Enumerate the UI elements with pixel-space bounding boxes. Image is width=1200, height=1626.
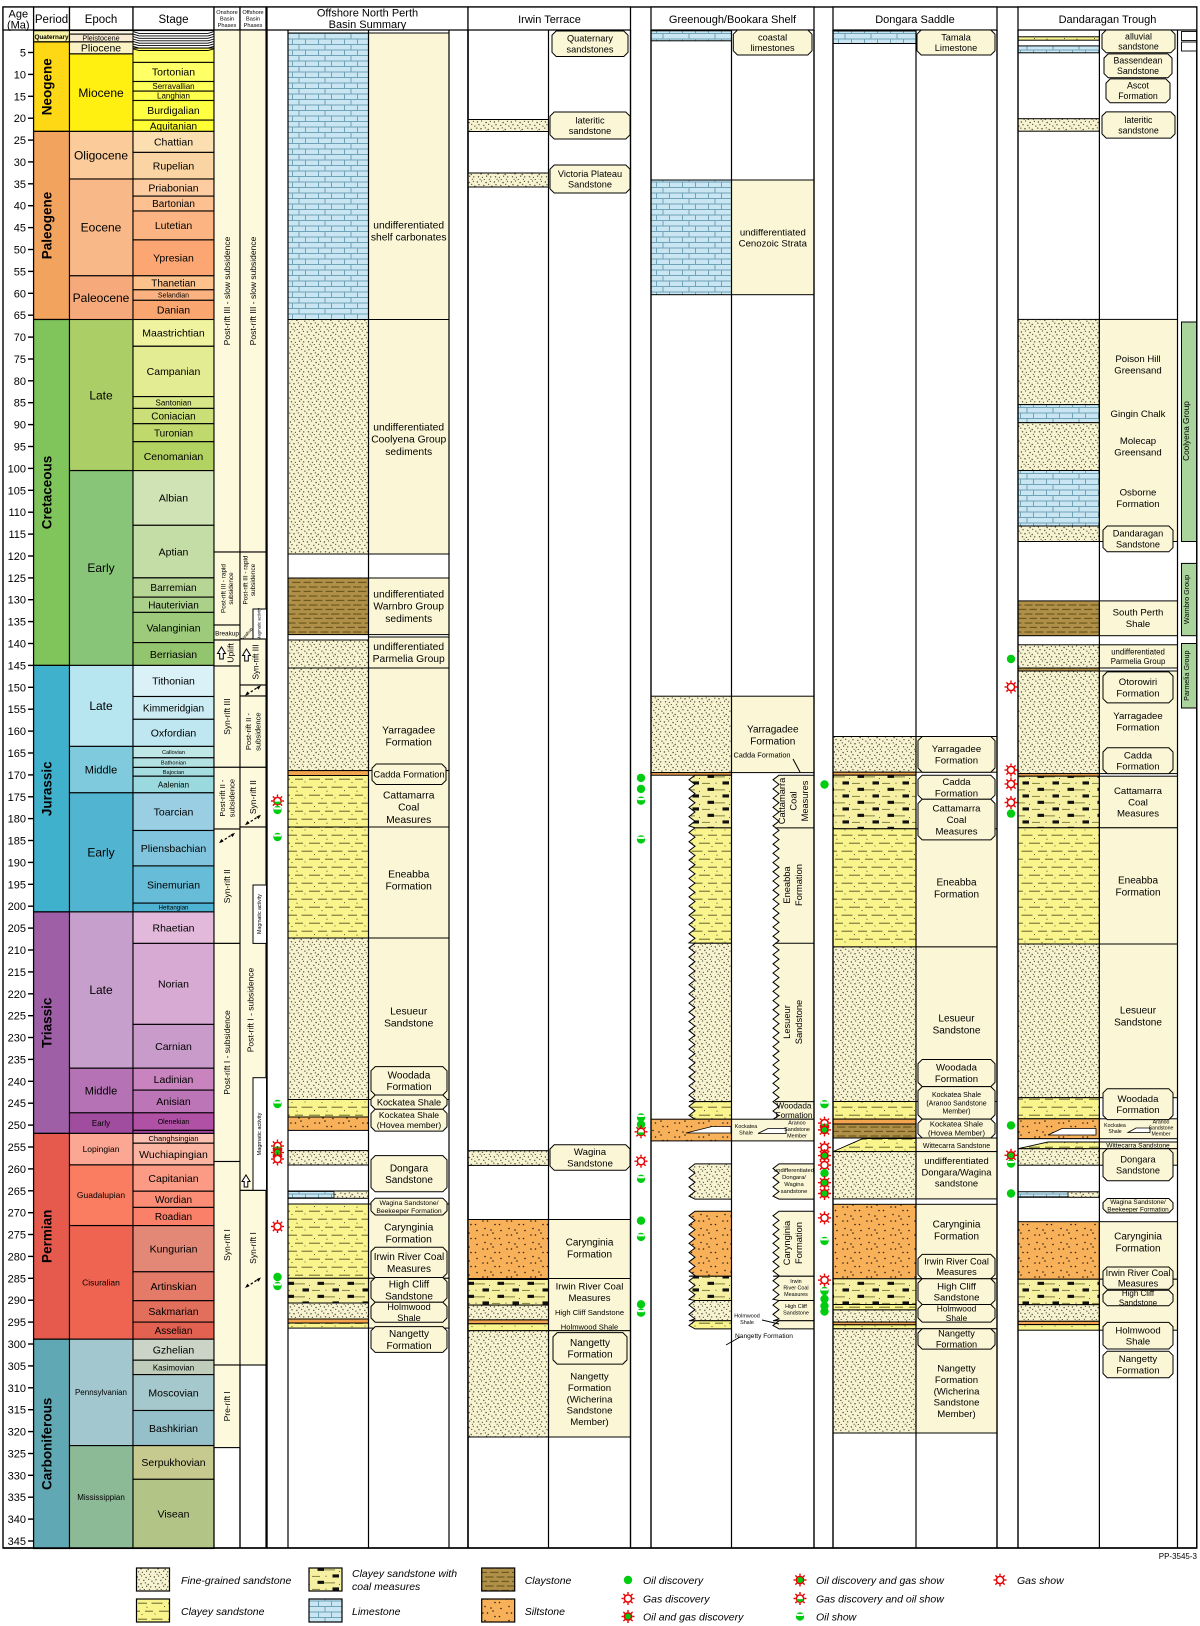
svg-text:Member): Member) xyxy=(942,1109,970,1116)
svg-text:Warnbro Group: Warnbro Group xyxy=(1182,575,1191,624)
svg-text:lateritic: lateritic xyxy=(575,115,605,125)
svg-text:Sandstone: Sandstone xyxy=(934,1293,980,1304)
svg-text:Gas discovery and oil show: Gas discovery and oil show xyxy=(816,1594,945,1606)
svg-text:205: 205 xyxy=(8,923,26,935)
svg-text:Gas show: Gas show xyxy=(1017,1575,1065,1587)
svg-text:alluvial: alluvial xyxy=(1125,31,1152,41)
svg-text:345: 345 xyxy=(8,1536,26,1548)
svg-text:Formation: Formation xyxy=(386,738,433,749)
svg-text:High Cliff: High Cliff xyxy=(785,1304,807,1310)
svg-text:Pliensbachian: Pliensbachian xyxy=(141,843,207,855)
svg-text:Sandstone: Sandstone xyxy=(933,1025,981,1036)
svg-text:Permian: Permian xyxy=(40,1210,55,1263)
svg-text:Aptian: Aptian xyxy=(159,546,189,558)
svg-text:Parmelia Group: Parmelia Group xyxy=(1111,657,1166,666)
svg-text:340: 340 xyxy=(8,1514,26,1526)
svg-text:Lutetian: Lutetian xyxy=(155,220,193,232)
svg-text:325: 325 xyxy=(8,1449,26,1461)
svg-text:Syn-rift II: Syn-rift II xyxy=(248,780,258,814)
svg-text:Norian: Norian xyxy=(158,979,189,991)
svg-text:Greenough/Bookara Shelf: Greenough/Bookara Shelf xyxy=(669,14,797,26)
svg-text:Early: Early xyxy=(87,846,114,860)
svg-text:Yarragadee: Yarragadee xyxy=(382,726,435,737)
svg-text:Limestone: Limestone xyxy=(935,43,977,53)
svg-text:Cattamarra: Cattamarra xyxy=(383,791,435,802)
svg-text:(Aranoo Sandstone: (Aranoo Sandstone xyxy=(926,1100,986,1107)
svg-text:undifferentiated: undifferentiated xyxy=(373,590,444,601)
svg-text:Syn-rift II: Syn-rift II xyxy=(222,869,232,903)
svg-text:South Perth: South Perth xyxy=(1113,608,1164,619)
svg-text:Lesueur: Lesueur xyxy=(1120,1006,1157,1017)
svg-text:Shale: Shale xyxy=(946,1313,968,1323)
svg-text:Uplift: Uplift xyxy=(226,643,236,663)
svg-text:Olenekian: Olenekian xyxy=(158,1119,190,1126)
svg-text:Langhian: Langhian xyxy=(157,92,190,101)
svg-text:Mississippian: Mississippian xyxy=(77,1493,125,1502)
svg-text:Formation: Formation xyxy=(935,755,978,766)
svg-text:330: 330 xyxy=(8,1470,26,1482)
svg-text:High Cliff Sandstone: High Cliff Sandstone xyxy=(555,1308,624,1317)
svg-text:Dongara: Dongara xyxy=(390,1163,429,1174)
svg-text:Formation: Formation xyxy=(1116,1105,1159,1116)
svg-text:Post-rift II -: Post-rift II - xyxy=(244,713,253,751)
svg-text:coastal: coastal xyxy=(758,32,787,42)
svg-text:Measures: Measures xyxy=(935,826,977,837)
svg-text:235: 235 xyxy=(8,1054,26,1066)
svg-text:Wittecarra Sandstone: Wittecarra Sandstone xyxy=(923,1143,990,1150)
svg-text:Nangetty: Nangetty xyxy=(570,1338,610,1349)
svg-text:Victoria Plateau: Victoria Plateau xyxy=(558,169,622,179)
svg-text:Nangetty: Nangetty xyxy=(1119,1354,1158,1365)
svg-text:Stage: Stage xyxy=(158,14,188,26)
svg-text:Sandstone: Sandstone xyxy=(568,180,612,190)
svg-text:Berriasian: Berriasian xyxy=(150,649,197,661)
svg-text:Paleocene: Paleocene xyxy=(73,291,130,305)
svg-text:160: 160 xyxy=(8,726,26,738)
svg-text:145: 145 xyxy=(8,660,26,672)
svg-text:Beekeeper Formation: Beekeeper Formation xyxy=(376,1208,442,1215)
svg-text:315: 315 xyxy=(8,1405,26,1417)
svg-text:Rhaetian: Rhaetian xyxy=(152,922,194,934)
svg-text:sandstone: sandstone xyxy=(1118,125,1159,135)
svg-text:Nangetty: Nangetty xyxy=(938,1329,975,1339)
svg-text:Serpukhovian: Serpukhovian xyxy=(141,1457,205,1469)
svg-text:Magmatic activity: Magmatic activity xyxy=(257,894,263,934)
svg-text:Early: Early xyxy=(92,1119,110,1128)
svg-text:Claystone: Claystone xyxy=(525,1575,572,1587)
svg-text:105: 105 xyxy=(8,485,26,497)
svg-text:Formation: Formation xyxy=(568,1383,611,1394)
svg-text:Woodada: Woodada xyxy=(388,1070,431,1081)
svg-text:Measures: Measures xyxy=(800,780,810,821)
svg-text:Formation: Formation xyxy=(1116,499,1159,510)
svg-text:Wordian: Wordian xyxy=(155,1195,192,1206)
svg-text:Triassic: Triassic xyxy=(40,997,55,1048)
svg-text:Basin: Basin xyxy=(220,17,234,23)
svg-text:Member: Member xyxy=(787,1134,807,1140)
svg-text:Eneabba: Eneabba xyxy=(936,878,976,889)
svg-text:165: 165 xyxy=(8,748,26,760)
svg-text:210: 210 xyxy=(8,945,26,957)
svg-text:Formation: Formation xyxy=(386,1341,431,1352)
svg-text:Gzhelian: Gzhelian xyxy=(153,1345,195,1357)
svg-text:Measures: Measures xyxy=(387,1264,431,1275)
svg-text:Tamala: Tamala xyxy=(941,32,972,42)
svg-text:Dandaragan: Dandaragan xyxy=(1113,529,1164,539)
svg-text:Early: Early xyxy=(87,561,114,575)
svg-text:Sandstone: Sandstone xyxy=(1116,540,1160,550)
svg-text:Post-rift III - slow subsidenc: Post-rift III - slow subsidence xyxy=(248,236,258,345)
svg-text:Roadian: Roadian xyxy=(155,1212,192,1223)
svg-text:Carnian: Carnian xyxy=(155,1041,192,1053)
svg-text:subsidence: subsidence xyxy=(228,572,235,605)
svg-text:Kockatea: Kockatea xyxy=(735,1124,757,1130)
svg-text:Coolyena Group: Coolyena Group xyxy=(371,435,446,446)
svg-text:45: 45 xyxy=(14,223,26,235)
svg-text:Osborne: Osborne xyxy=(1120,488,1157,499)
svg-text:Greensand: Greensand xyxy=(1114,366,1161,377)
svg-text:Formation: Formation xyxy=(1118,91,1158,101)
svg-text:Cadda: Cadda xyxy=(942,777,971,788)
svg-text:Sandstone: Sandstone xyxy=(567,1159,613,1170)
svg-text:Sinemurian: Sinemurian xyxy=(147,879,200,891)
svg-text:(Wicherina: (Wicherina xyxy=(567,1394,614,1405)
svg-text:Cadda Formation: Cadda Formation xyxy=(733,751,790,760)
svg-text:Carynginia: Carynginia xyxy=(384,1223,433,1234)
svg-text:Aalenian: Aalenian xyxy=(158,780,189,789)
svg-text:125: 125 xyxy=(8,573,26,585)
svg-text:Syn-rift I: Syn-rift I xyxy=(222,1229,232,1261)
svg-text:undifferentiated: undifferentiated xyxy=(373,642,444,653)
svg-text:60: 60 xyxy=(14,288,26,300)
svg-text:Cisuralian: Cisuralian xyxy=(82,1277,120,1287)
svg-text:Parmelia Group: Parmelia Group xyxy=(1182,651,1191,701)
svg-text:Lopingian: Lopingian xyxy=(83,1144,120,1154)
svg-text:Woodada: Woodada xyxy=(936,1063,978,1074)
svg-text:Gingin Chalk: Gingin Chalk xyxy=(1111,409,1166,420)
svg-text:Carynginia: Carynginia xyxy=(566,1238,614,1249)
svg-text:130: 130 xyxy=(8,595,26,607)
svg-text:High Cliff: High Cliff xyxy=(1122,1289,1155,1298)
svg-text:coal measures: coal measures xyxy=(352,1581,421,1593)
svg-text:170: 170 xyxy=(8,770,26,782)
svg-text:(Hovea member): (Hovea member) xyxy=(377,1120,442,1130)
svg-text:70: 70 xyxy=(14,332,26,344)
svg-text:Clayey sandstone with: Clayey sandstone with xyxy=(352,1568,457,1580)
svg-text:sandstone: sandstone xyxy=(781,1189,808,1195)
svg-text:(Hovea Member): (Hovea Member) xyxy=(928,1129,985,1138)
svg-text:Nangetty: Nangetty xyxy=(937,1364,976,1375)
svg-text:150: 150 xyxy=(8,682,26,694)
svg-text:Formation: Formation xyxy=(567,1350,612,1361)
svg-text:25: 25 xyxy=(14,135,26,147)
svg-text:Poison Hill: Poison Hill xyxy=(1115,354,1160,365)
svg-text:Artinskian: Artinskian xyxy=(150,1281,196,1293)
svg-text:High Cliff: High Cliff xyxy=(389,1280,430,1291)
svg-text:Formation: Formation xyxy=(935,1074,978,1085)
svg-text:Dandaragan Trough: Dandaragan Trough xyxy=(1059,14,1157,26)
svg-text:Sandstone: Sandstone xyxy=(1116,1165,1160,1175)
svg-text:Wagina Sandstone/: Wagina Sandstone/ xyxy=(1110,1199,1166,1206)
svg-text:225: 225 xyxy=(8,1011,26,1023)
svg-text:Eneabba: Eneabba xyxy=(388,870,430,881)
svg-text:185: 185 xyxy=(8,836,26,848)
svg-text:180: 180 xyxy=(8,814,26,826)
svg-text:Miocene: Miocene xyxy=(78,86,124,100)
svg-text:undifferentiated: undifferentiated xyxy=(774,1168,814,1174)
svg-text:Wagina Sandstone/: Wagina Sandstone/ xyxy=(379,1200,438,1207)
svg-text:Pliocene: Pliocene xyxy=(81,43,121,55)
svg-text:Shale: Shale xyxy=(1126,619,1151,630)
svg-text:Formation: Formation xyxy=(935,788,978,799)
svg-text:Yarragadee: Yarragadee xyxy=(747,725,799,736)
svg-text:Sandstone: Sandstone xyxy=(385,1175,433,1186)
svg-text:Irwin River Coal: Irwin River Coal xyxy=(924,1256,989,1266)
svg-text:Holmwood: Holmwood xyxy=(1115,1325,1160,1336)
svg-text:10: 10 xyxy=(14,69,26,81)
svg-text:Dongara Saddle: Dongara Saddle xyxy=(875,14,955,26)
svg-text:Aranoo: Aranoo xyxy=(788,1121,805,1127)
svg-text:35: 35 xyxy=(14,179,26,191)
svg-text:310: 310 xyxy=(8,1383,26,1395)
svg-text:Changhsingian: Changhsingian xyxy=(148,1134,198,1143)
svg-text:110: 110 xyxy=(8,507,26,519)
svg-text:215: 215 xyxy=(8,967,26,979)
svg-text:Carynginia: Carynginia xyxy=(782,1220,792,1265)
svg-text:Oligocene: Oligocene xyxy=(74,148,128,162)
svg-text:Capitanian: Capitanian xyxy=(148,1173,198,1185)
svg-text:Sandstone: Sandstone xyxy=(567,1406,613,1417)
svg-text:190: 190 xyxy=(8,857,26,869)
svg-text:Sakmarian: Sakmarian xyxy=(148,1306,198,1318)
svg-text:Aquitanian: Aquitanian xyxy=(150,121,197,132)
svg-text:Formation: Formation xyxy=(1116,1366,1159,1377)
svg-text:265: 265 xyxy=(8,1186,26,1198)
svg-text:Fine-grained sandstone: Fine-grained sandstone xyxy=(181,1575,291,1587)
svg-text:Carynginia: Carynginia xyxy=(933,1220,981,1231)
svg-text:155: 155 xyxy=(8,704,26,716)
svg-text:75: 75 xyxy=(14,354,26,366)
svg-text:Wagina: Wagina xyxy=(574,1147,607,1158)
svg-text:Formation: Formation xyxy=(794,1222,804,1264)
svg-text:undifferentiated: undifferentiated xyxy=(924,1155,988,1166)
svg-text:Bajocian: Bajocian xyxy=(163,770,184,776)
svg-text:Lesueur: Lesueur xyxy=(782,1005,792,1039)
svg-text:290: 290 xyxy=(8,1295,26,1307)
svg-text:335: 335 xyxy=(8,1492,26,1504)
svg-text:320: 320 xyxy=(8,1427,26,1439)
svg-text:30: 30 xyxy=(14,157,26,169)
svg-text:Formation: Formation xyxy=(934,1231,979,1242)
svg-text:Irwin River Coal: Irwin River Coal xyxy=(556,1282,624,1293)
svg-text:Syn-rift III: Syn-rift III xyxy=(252,644,261,679)
svg-text:Irwin Terrace: Irwin Terrace xyxy=(518,14,581,26)
svg-text:Kimmeridgian: Kimmeridgian xyxy=(143,704,204,715)
svg-text:Shale: Shale xyxy=(1126,1337,1151,1348)
svg-text:sandstone: sandstone xyxy=(1118,42,1159,52)
svg-text:Chattian: Chattian xyxy=(154,137,193,149)
svg-text:Syn-rift I: Syn-rift I xyxy=(248,1232,258,1264)
svg-text:Wagina: Wagina xyxy=(784,1182,804,1188)
svg-text:Bashkirian: Bashkirian xyxy=(149,1423,198,1435)
svg-text:Campanian: Campanian xyxy=(147,366,201,378)
svg-text:shelf carbonates: shelf carbonates xyxy=(371,233,447,244)
svg-text:Syn-rift III: Syn-rift III xyxy=(222,698,232,734)
svg-text:Barremian: Barremian xyxy=(150,583,196,594)
svg-text:Cenozoic Strata: Cenozoic Strata xyxy=(739,239,808,250)
svg-text:Formation: Formation xyxy=(1116,723,1159,734)
svg-text:undifferentiated: undifferentiated xyxy=(1111,648,1165,657)
svg-text:100: 100 xyxy=(8,463,26,475)
svg-text:200: 200 xyxy=(8,901,26,913)
svg-text:Post-rift III - rapid: Post-rift III - rapid xyxy=(242,555,249,604)
svg-text:Quaternary: Quaternary xyxy=(34,34,69,41)
svg-text:285: 285 xyxy=(8,1273,26,1285)
svg-text:Eneabba: Eneabba xyxy=(1118,876,1158,887)
svg-text:Middle: Middle xyxy=(85,1085,117,1097)
svg-text:Late: Late xyxy=(89,388,113,402)
svg-text:Maastrichtian: Maastrichtian xyxy=(142,328,205,340)
svg-text:Formation: Formation xyxy=(1116,762,1159,773)
svg-text:40: 40 xyxy=(14,201,26,213)
svg-text:Cattamarra: Cattamarra xyxy=(1114,786,1163,797)
svg-text:River Coal: River Coal xyxy=(783,1286,808,1292)
svg-text:Serravallian: Serravallian xyxy=(152,82,194,91)
svg-text:undifferentiated: undifferentiated xyxy=(740,227,806,238)
svg-text:Holmwood: Holmwood xyxy=(734,1314,759,1320)
svg-text:175: 175 xyxy=(8,792,26,804)
svg-text:Priabonian: Priabonian xyxy=(148,182,198,194)
svg-text:Cenomanian: Cenomanian xyxy=(144,451,204,463)
svg-text:Formation: Formation xyxy=(567,1249,612,1260)
svg-text:Formation: Formation xyxy=(1115,887,1160,898)
svg-text:High Cliff: High Cliff xyxy=(937,1281,976,1292)
svg-text:Asselian: Asselian xyxy=(155,1326,193,1337)
svg-text:Danian: Danian xyxy=(157,305,190,317)
svg-text:Coal: Coal xyxy=(1128,797,1148,808)
svg-text:Formation: Formation xyxy=(794,864,804,906)
svg-text:65: 65 xyxy=(14,310,26,322)
svg-text:Phases: Phases xyxy=(218,23,237,29)
svg-text:120: 120 xyxy=(8,551,26,563)
svg-text:Offshore: Offshore xyxy=(242,10,263,16)
svg-text:195: 195 xyxy=(8,879,26,891)
svg-text:Late: Late xyxy=(89,983,113,997)
svg-text:sandstone: sandstone xyxy=(569,126,611,136)
svg-text:Sandstone: Sandstone xyxy=(934,1398,980,1409)
svg-text:Guadalupian: Guadalupian xyxy=(77,1190,125,1200)
svg-text:Turonian: Turonian xyxy=(154,428,193,439)
svg-text:Ypresian: Ypresian xyxy=(153,253,194,265)
svg-text:Offshore North Perth: Offshore North Perth xyxy=(317,8,418,20)
svg-text:85: 85 xyxy=(14,398,26,410)
svg-text:15: 15 xyxy=(14,91,26,103)
svg-text:Cattamarra: Cattamarra xyxy=(933,804,982,815)
svg-text:305: 305 xyxy=(8,1361,26,1373)
svg-text:Valanginian: Valanginian xyxy=(146,622,200,634)
svg-text:Oil discovery and gas show: Oil discovery and gas show xyxy=(816,1575,945,1587)
svg-text:subsidence: subsidence xyxy=(227,779,236,817)
svg-text:Sandstone: Sandstone xyxy=(1117,66,1159,76)
svg-text:Basin: Basin xyxy=(246,17,260,23)
svg-text:250: 250 xyxy=(8,1120,26,1132)
svg-text:Nangetty: Nangetty xyxy=(570,1372,609,1383)
svg-text:Cretaceous: Cretaceous xyxy=(40,456,55,530)
svg-text:Beekeeper Formation: Beekeeper Formation xyxy=(1107,1207,1169,1214)
svg-text:(Wicherina: (Wicherina xyxy=(934,1386,981,1397)
svg-text:Yarragadee: Yarragadee xyxy=(932,744,981,755)
svg-text:undifferentiated: undifferentiated xyxy=(373,423,444,434)
svg-text:Nangetty: Nangetty xyxy=(389,1329,429,1340)
svg-text:295: 295 xyxy=(8,1317,26,1329)
svg-text:Ascot: Ascot xyxy=(1127,81,1150,91)
svg-text:275: 275 xyxy=(8,1230,26,1242)
svg-text:Formation: Formation xyxy=(1116,688,1159,699)
svg-text:Burdigalian: Burdigalian xyxy=(147,105,200,117)
svg-text:Sandstone: Sandstone xyxy=(385,1291,433,1302)
svg-text:5: 5 xyxy=(20,48,26,60)
svg-text:Onshore: Onshore xyxy=(216,10,237,16)
svg-text:sediments: sediments xyxy=(385,447,432,458)
svg-text:Parmelia Group: Parmelia Group xyxy=(373,654,445,665)
svg-text:Neogene: Neogene xyxy=(40,58,55,116)
svg-text:Woodada: Woodada xyxy=(777,1102,812,1111)
svg-text:(Ma): (Ma) xyxy=(7,20,30,32)
svg-text:Wuchiapingian: Wuchiapingian xyxy=(139,1149,208,1161)
svg-text:undifferentiated: undifferentiated xyxy=(373,221,444,232)
svg-text:Greensand: Greensand xyxy=(1114,448,1161,459)
svg-text:255: 255 xyxy=(8,1142,26,1154)
svg-text:Pleistocene: Pleistocene xyxy=(82,34,119,43)
svg-text:Shale: Shale xyxy=(739,1131,753,1137)
svg-text:Kockatea Shale: Kockatea Shale xyxy=(932,1092,981,1099)
svg-text:Formation: Formation xyxy=(934,889,979,900)
svg-text:Epoch: Epoch xyxy=(85,14,118,26)
svg-text:Post-rift II -: Post-rift II - xyxy=(218,779,227,817)
svg-text:Kockatea Shale: Kockatea Shale xyxy=(377,1097,441,1107)
svg-text:Holmwood Shale: Holmwood Shale xyxy=(561,1323,618,1332)
svg-text:Post-rift I - subsidence: Post-rift I - subsidence xyxy=(246,967,256,1052)
svg-text:80: 80 xyxy=(14,376,26,388)
svg-text:Formation: Formation xyxy=(1115,1243,1160,1254)
svg-text:Measures: Measures xyxy=(1118,1279,1159,1289)
svg-text:Measures: Measures xyxy=(568,1293,610,1304)
svg-text:Selandian: Selandian xyxy=(158,293,189,300)
svg-text:220: 220 xyxy=(8,989,26,1001)
svg-text:135: 135 xyxy=(8,617,26,629)
svg-text:Oil and gas discovery: Oil and gas discovery xyxy=(643,1612,744,1624)
svg-text:Hauterivian: Hauterivian xyxy=(148,600,199,611)
svg-text:lateritic: lateritic xyxy=(1125,115,1153,125)
svg-text:Formation: Formation xyxy=(935,1375,978,1386)
svg-text:Irwin River Coal: Irwin River Coal xyxy=(1106,1268,1171,1278)
svg-text:Shale: Shale xyxy=(740,1320,754,1326)
svg-text:20: 20 xyxy=(14,113,26,125)
svg-text:Jurassic: Jurassic xyxy=(40,761,55,816)
svg-text:Gas discovery: Gas discovery xyxy=(643,1594,710,1606)
svg-text:Shale: Shale xyxy=(1108,1129,1121,1135)
svg-text:Irwin: Irwin xyxy=(790,1279,801,1285)
svg-text:Cadda Formation: Cadda Formation xyxy=(374,770,445,780)
svg-text:Sandstone: Sandstone xyxy=(784,1127,810,1133)
svg-text:Member): Member) xyxy=(570,1417,608,1428)
svg-text:subsidence: subsidence xyxy=(253,712,262,750)
svg-text:Yarragadee: Yarragadee xyxy=(1113,711,1162,722)
svg-text:Coal: Coal xyxy=(398,803,419,814)
svg-text:Formation: Formation xyxy=(776,1111,813,1120)
svg-text:Molecap: Molecap xyxy=(1120,436,1156,447)
svg-text:Albian: Albian xyxy=(159,493,188,505)
